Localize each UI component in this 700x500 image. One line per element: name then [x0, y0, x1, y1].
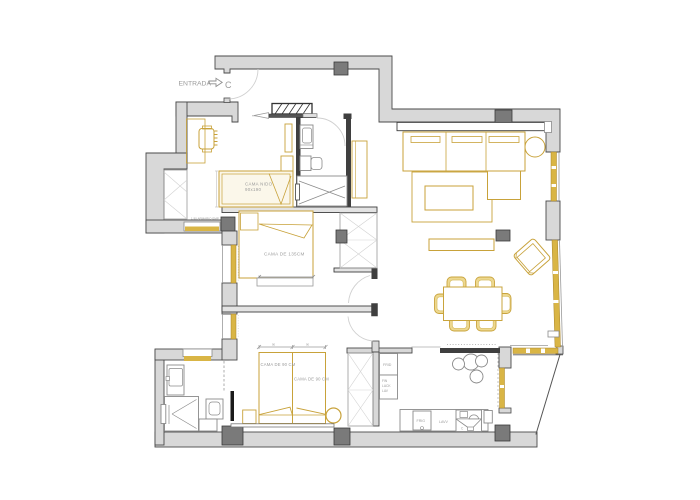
- svg-text:1.90 ARMARIO EMP.: 1.90 ARMARIO EMP.: [191, 217, 219, 221]
- svg-text:CAMA DE 135CM: CAMA DE 135CM: [264, 252, 305, 257]
- svg-text:CAMA DE 90 CM: CAMA DE 90 CM: [261, 362, 296, 367]
- svg-text:FRID: FRID: [383, 363, 392, 367]
- svg-text:90: 90: [272, 343, 276, 347]
- svg-text:C: C: [225, 80, 232, 90]
- svg-text:90x190: 90x190: [245, 187, 261, 192]
- svg-text:LAVV: LAVV: [439, 420, 449, 424]
- svg-text:CAMA DE 90 CM: CAMA DE 90 CM: [294, 376, 329, 381]
- svg-text:LAV: LAV: [382, 389, 389, 393]
- svg-text:LACK: LACK: [382, 384, 391, 388]
- svg-text:FRIG: FRIG: [417, 419, 426, 423]
- svg-text:FIN: FIN: [382, 379, 388, 383]
- svg-text:ENTRADA: ENTRADA: [179, 81, 212, 88]
- svg-text:CAMA NIDO: CAMA NIDO: [245, 182, 273, 187]
- svg-text:90: 90: [306, 343, 310, 347]
